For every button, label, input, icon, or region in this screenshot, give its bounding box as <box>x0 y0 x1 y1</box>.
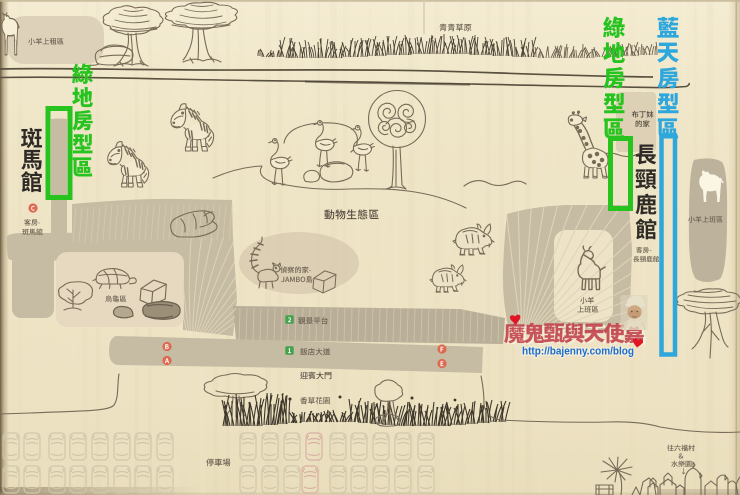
svg-text:http://bajenny.com/blog: http://bajenny.com/blog <box>522 346 634 358</box>
